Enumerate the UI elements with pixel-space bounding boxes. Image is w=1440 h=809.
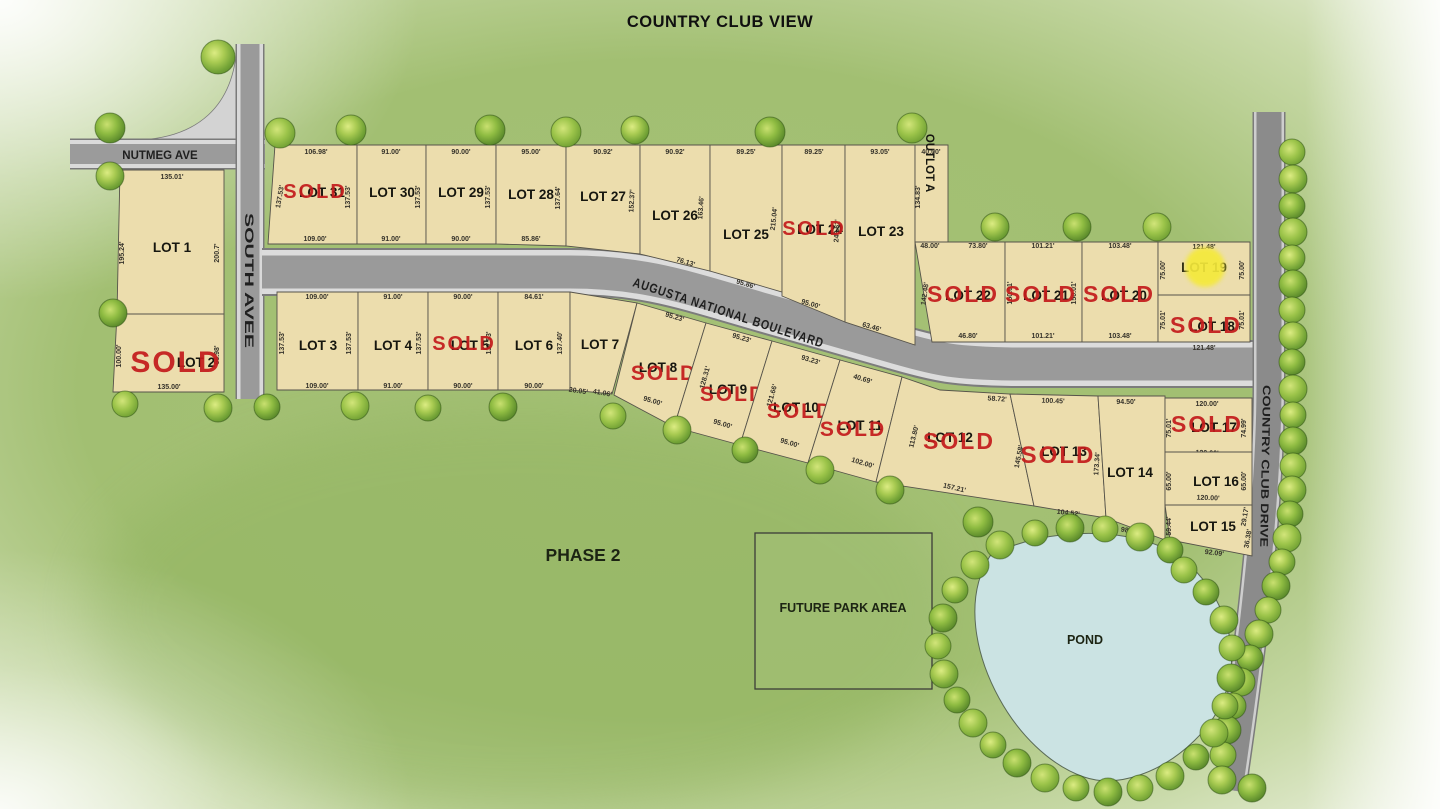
lot-24-sold-stamp: SOLD: [782, 218, 846, 240]
tree-icon: [1143, 213, 1171, 241]
lot-28-group: LOT 2895.00'137.64'85.86': [496, 145, 566, 246]
tree-icon: [663, 416, 691, 444]
site-plan-stage: FUTURE PARK AREA POND LOT 1135.01'195.24…: [0, 0, 1440, 809]
tree-icon: [1092, 516, 1118, 542]
dimension-label: 75.01': [1160, 310, 1167, 330]
dimension-label: 120.00': [1195, 401, 1218, 408]
dimension-label: 40.00': [921, 149, 941, 156]
dimension-label: 137.53': [279, 331, 286, 354]
lot-4-group: LOT 491.00'137.53'91.00': [358, 292, 428, 390]
lot-12-sold-stamp: SOLD: [923, 428, 995, 454]
dimension-label: 90.00': [451, 236, 471, 243]
tree-icon: [1262, 572, 1290, 600]
dimension-label: 90.00': [451, 149, 471, 156]
tree-icon: [204, 394, 232, 422]
dimension-label: 90.92': [665, 149, 685, 156]
dimension-label: 85.86': [521, 236, 541, 243]
tree-icon: [96, 162, 124, 190]
dimension-label: 58.72': [987, 395, 1007, 403]
dimension-label: 137.53': [416, 331, 423, 354]
outlot-a-label: OUTLOT A: [923, 134, 935, 192]
tree-icon: [1279, 427, 1307, 455]
tree-icon: [1279, 375, 1307, 403]
dimension-label: 93.05': [870, 149, 890, 156]
tree-icon: [942, 577, 968, 603]
tree-icon: [1127, 775, 1153, 801]
lot-29-label: LOT 29: [438, 185, 484, 200]
tree-icon: [1183, 744, 1209, 770]
lot-6-group: LOT 684.61'137.40'90.00': [498, 292, 570, 390]
tree-icon: [95, 113, 125, 143]
dimension-label: 91.00': [381, 236, 401, 243]
tree-icon: [876, 476, 904, 504]
tree-icon: [1063, 775, 1089, 801]
dimension-label: 100.00': [116, 344, 123, 367]
lot-31-group: LOT 31106.98'137.53'137.53'109.00'SOLD: [268, 145, 357, 244]
edge-fade-right: [1305, 0, 1440, 809]
lot-4-label: LOT 4: [374, 338, 413, 353]
tree-icon: [112, 391, 138, 417]
lot-17-group: LOT 17120.00'75.01'74.99'120.00'SOLD: [1165, 398, 1252, 457]
dimension-label: 90.00': [524, 383, 544, 390]
dimension-label: 65.00': [1166, 471, 1173, 491]
edge-fade-bottom-left: [0, 520, 460, 809]
tree-icon: [1212, 693, 1238, 719]
dimension-label: 46.80': [958, 333, 978, 340]
tree-icon: [1217, 664, 1245, 692]
lot-31-sold-stamp: SOLD: [283, 181, 347, 203]
lot-30-group: LOT 3091.00'137.53'91.00': [357, 145, 426, 244]
tree-icon: [1279, 270, 1307, 298]
lot-15-label: LOT 15: [1190, 519, 1236, 534]
lot-21-sold-stamp: SOLD: [1005, 281, 1077, 307]
dimension-label: 137.40': [557, 331, 564, 354]
tree-icon: [1279, 245, 1305, 271]
tree-icon: [1255, 597, 1281, 623]
lot-20-group: LOT 20103.48'103.48'SOLD: [1082, 242, 1158, 342]
lot-18-sold-stamp: SOLD: [1170, 312, 1242, 338]
tree-icon: [1279, 139, 1305, 165]
tree-icon: [732, 437, 758, 463]
tree-icon: [489, 393, 517, 421]
tree-icon: [1279, 322, 1307, 350]
dimension-label: 91.00': [381, 149, 401, 156]
lot-16-group: LOT 1665.00'65.00'120.00': [1165, 452, 1252, 505]
dimension-label: 84.61': [524, 294, 544, 301]
plat-map: FUTURE PARK AREA POND LOT 1135.01'195.24…: [0, 0, 1440, 809]
tree-icon: [1210, 606, 1238, 634]
lot-21-group: LOT 21101.21'150.01'150.01'101.21'SOLD: [1005, 242, 1082, 342]
dimension-label: 109.00': [305, 294, 328, 301]
tree-icon: [806, 456, 834, 484]
dimension-label: 200.7': [214, 243, 221, 263]
lot-25-label: LOT 25: [723, 227, 769, 242]
lot-29-group: LOT 2990.00'137.53'90.00': [426, 145, 496, 244]
tree-icon: [963, 507, 993, 537]
tree-icon: [980, 732, 1006, 758]
tree-icon: [201, 40, 235, 74]
lot-22-sold-stamp: SOLD: [927, 281, 999, 307]
tree-icon: [1126, 523, 1154, 551]
tree-icon: [1273, 524, 1301, 552]
tree-icon: [99, 299, 127, 327]
tree-icon: [1238, 774, 1266, 802]
tree-icon: [1056, 514, 1084, 542]
tree-icon: [621, 116, 649, 144]
tree-icon: [1193, 579, 1219, 605]
dimension-label: 137.64': [555, 186, 562, 209]
dimension-label: 106.98': [304, 149, 327, 156]
lot-19-highlight-marker: [1185, 247, 1225, 287]
future-park-label: FUTURE PARK AREA: [779, 601, 906, 615]
pond-label: POND: [1067, 633, 1103, 647]
tree-icon: [551, 117, 581, 147]
dimension-label: 109.00': [305, 383, 328, 390]
lot-1-group: LOT 1135.01'195.24'200.7'135.04': [117, 170, 224, 323]
lot-20-sold-stamp: SOLD: [1083, 281, 1155, 307]
tree-icon: [1278, 476, 1306, 504]
tree-icon: [1279, 165, 1307, 193]
dimension-label: 75.00': [1160, 260, 1167, 280]
tree-icon: [1279, 297, 1305, 323]
dimension-label: 95.00': [521, 149, 541, 156]
lot-7-label: LOT 7: [581, 337, 619, 352]
road-label-south: SOUTH AVEE: [242, 213, 254, 349]
tree-icon: [959, 709, 987, 737]
tree-icon: [1063, 213, 1091, 241]
tree-icon: [341, 392, 369, 420]
lot-3-group: LOT 3109.00'137.53'137.53'109.00': [277, 292, 358, 390]
tree-icon: [1277, 501, 1303, 527]
lot-23-group: LOT 2393.05'63.46': [845, 145, 915, 345]
lot-25-group: LOT 2589.25'215.04'95.86': [710, 145, 782, 292]
lot-26-group: LOT 2690.92'163.46'76.13': [640, 145, 710, 271]
dimension-label: 135.01': [160, 174, 183, 181]
lot-14-label: LOT 14: [1107, 465, 1153, 480]
road-label-nutmeg: NUTMEG AVE: [122, 150, 198, 162]
tree-icon: [1003, 749, 1031, 777]
lot-3-label: LOT 3: [299, 338, 338, 353]
tree-icon: [1269, 549, 1295, 575]
dimension-label: 152.37': [628, 189, 636, 213]
dimension-label: 109.00': [303, 236, 326, 243]
dimension-label: 90.92': [593, 149, 613, 156]
dimension-label: 73.80': [968, 243, 988, 250]
lot-1-label: LOT 1: [153, 240, 192, 255]
tree-icon: [929, 604, 957, 632]
tree-icon: [1171, 557, 1197, 583]
tree-icon: [1279, 349, 1305, 375]
dimension-label: 103.48': [1108, 333, 1131, 340]
lot-8-sold-stamp: SOLD: [631, 362, 697, 385]
lot-11-sold-stamp: SOLD: [820, 418, 886, 441]
tree-icon: [1245, 620, 1273, 648]
tree-icon: [1094, 778, 1122, 806]
tree-icon: [1022, 520, 1048, 546]
dimension-label: 65.00': [1241, 471, 1248, 491]
dimension-label: 137.53': [346, 331, 353, 354]
tree-icon: [986, 531, 1014, 559]
tree-icon: [1279, 218, 1307, 246]
dimension-label: 48.00': [920, 243, 940, 250]
dimension-label: 195.24': [119, 241, 126, 264]
dimension-label: 121.48': [1192, 345, 1215, 352]
dimension-label: 94.50': [1116, 399, 1136, 406]
dimension-label: 91.00': [383, 294, 403, 301]
tree-icon: [944, 687, 970, 713]
lot-27-label: LOT 27: [580, 189, 626, 204]
dimension-label: 91.00': [383, 383, 403, 390]
phase-label: PHASE 2: [546, 545, 621, 565]
lot-2-sold-stamp: SOLD: [130, 346, 221, 379]
tree-icon: [415, 395, 441, 421]
dimension-label: 89.25': [736, 149, 756, 156]
lot-26-label: LOT 26: [652, 208, 698, 223]
lot-27-group: LOT 2790.92'152.37': [566, 145, 640, 254]
dimension-label: 135.00': [157, 384, 180, 391]
dimension-label: 90.00': [453, 294, 473, 301]
tree-icon: [265, 118, 295, 148]
dimension-label: 120.00': [1196, 495, 1220, 503]
dimension-label: 89.25': [804, 149, 824, 156]
lot-2-group: LOT 2100.00'66.98'135.00'SOLD: [113, 314, 224, 392]
tree-icon: [1200, 719, 1228, 747]
tree-icon: [1280, 402, 1306, 428]
page-title: COUNTRY CLUB VIEW: [627, 13, 813, 31]
dimension-label: 90.00': [453, 383, 473, 390]
tree-icon: [600, 403, 626, 429]
lot-5-sold-stamp: SOLD: [432, 333, 496, 355]
tree-icon: [336, 115, 366, 145]
dimension-label: 59.44': [1166, 516, 1173, 536]
dimension-label: 101.21': [1031, 333, 1054, 340]
outlot-a-group: OUTLOT A40.00'134.83': [915, 134, 948, 242]
tree-icon: [1219, 635, 1245, 661]
tree-icon: [475, 115, 505, 145]
tree-icon: [1156, 762, 1184, 790]
tree-icon: [1279, 193, 1305, 219]
lot-23[interactable]: [845, 145, 915, 345]
lot-23-label: LOT 23: [858, 224, 904, 239]
dimension-label: 101.21': [1031, 243, 1054, 250]
tree-icon: [925, 633, 951, 659]
dimension-label: 137.53': [485, 185, 492, 208]
lot-17-sold-stamp: SOLD: [1171, 411, 1243, 437]
dimension-label: 100.45': [1041, 398, 1065, 406]
lot-28-label: LOT 28: [508, 187, 554, 202]
lot-30-label: LOT 30: [369, 185, 415, 200]
dimension-label: 103.48': [1108, 243, 1131, 250]
tree-icon: [961, 551, 989, 579]
lot-13-sold-stamp: SOLD: [1021, 442, 1096, 469]
lot-16-label: LOT 16: [1193, 474, 1239, 489]
lot-6-label: LOT 6: [515, 338, 554, 353]
dimension-label: 137.53': [415, 185, 422, 208]
tree-icon: [897, 113, 927, 143]
tree-icon: [755, 117, 785, 147]
tree-icon: [930, 660, 958, 688]
lot-24-group: LOT 2489.25'248.62'95.00'SOLD: [782, 145, 846, 322]
tree-icon: [1031, 764, 1059, 792]
lot-5-group: LOT 590.00'137.53'90.00'SOLD: [428, 292, 498, 390]
tree-icon: [1208, 766, 1236, 794]
dimension-label: 134.83': [915, 185, 922, 208]
tree-icon: [254, 394, 280, 420]
tree-icon: [981, 213, 1009, 241]
tree-icon: [1280, 453, 1306, 479]
dimension-label: 75.00': [1239, 260, 1246, 280]
